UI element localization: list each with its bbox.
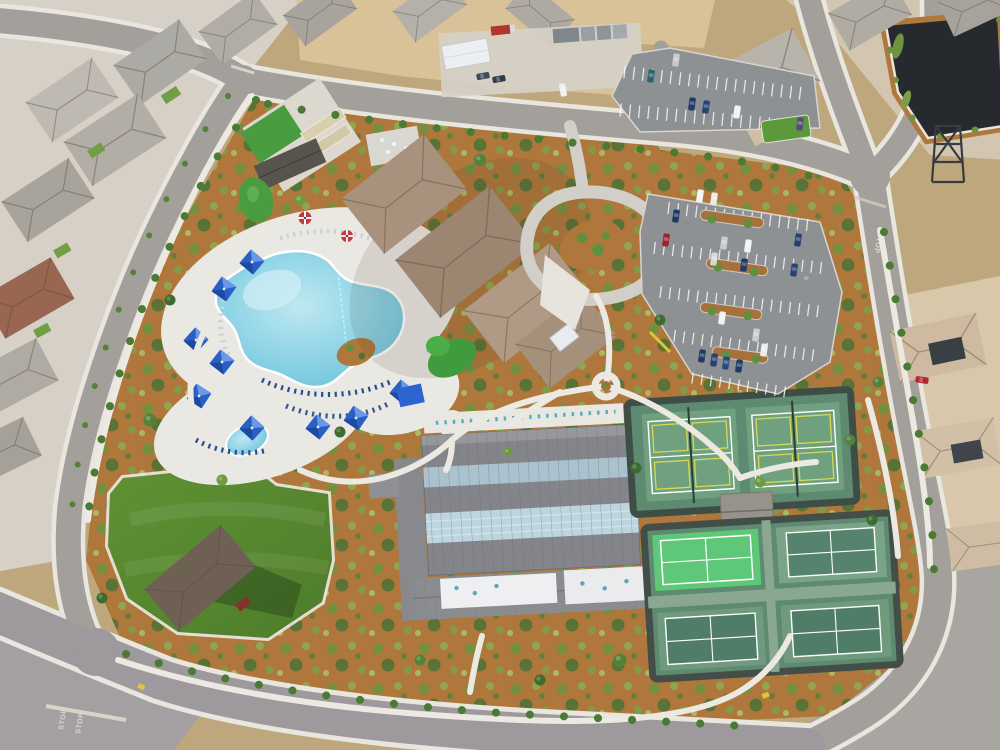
pickleball-court-nw (652, 529, 761, 591)
aerial-photo-stage: STOP STOP STOP (0, 0, 1000, 750)
construction-yard (438, 23, 643, 97)
aerial-photo: STOP STOP STOP (0, 0, 1000, 750)
pickleball-court-sw (657, 607, 766, 671)
south-patio-1 (440, 573, 557, 609)
pickleball-courts (644, 513, 901, 680)
south-patio-2 (564, 566, 650, 604)
pickleball-court-ne (776, 521, 887, 583)
pickleball-court-se (781, 599, 892, 663)
